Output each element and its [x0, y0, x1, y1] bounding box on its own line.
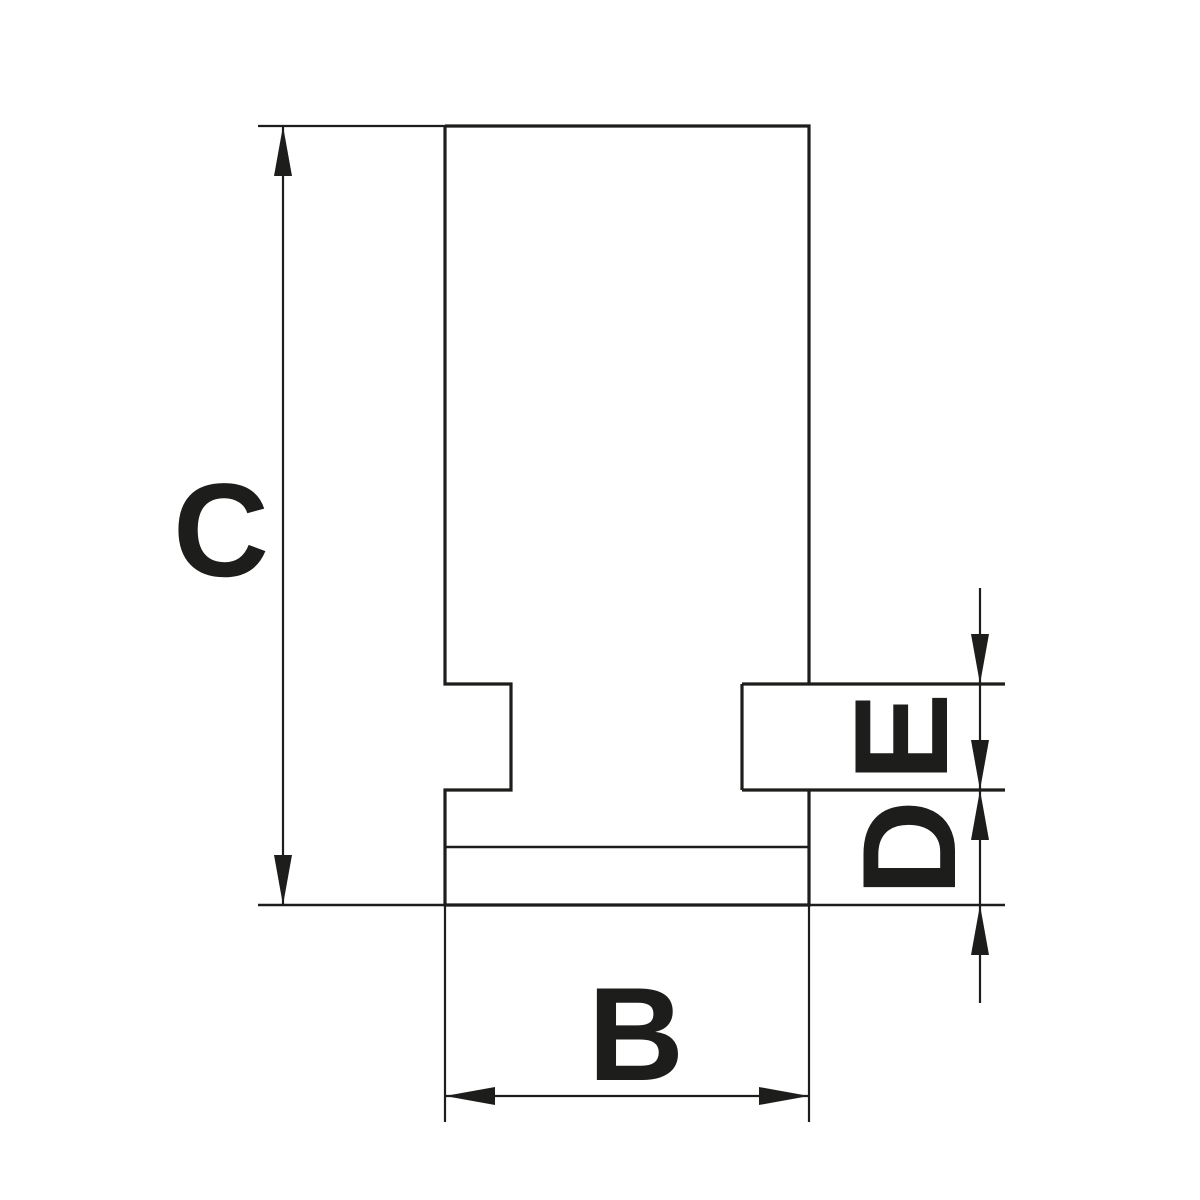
- dimension-label-e: E: [828, 693, 976, 782]
- technical-drawing: C B E D: [0, 0, 1200, 1200]
- dimension-label-d: D: [836, 800, 984, 896]
- dimension-label-c: C: [173, 457, 269, 605]
- drawing-canvas: C B E D: [0, 0, 1200, 1200]
- dimension-label-b: B: [588, 961, 684, 1109]
